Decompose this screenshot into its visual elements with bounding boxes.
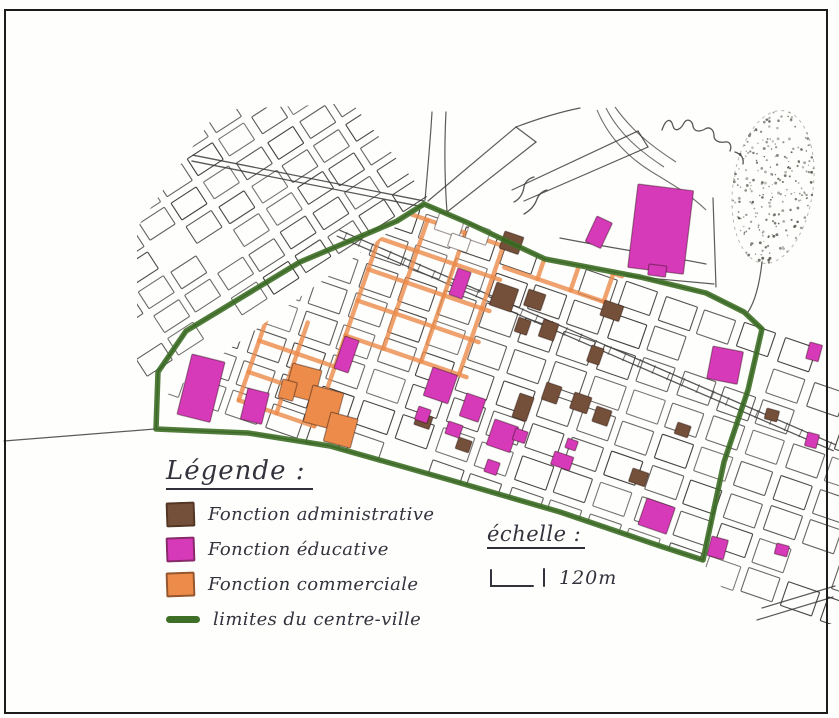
legend-item-commerciale: Fonction commerciale bbox=[166, 572, 434, 597]
legend-item-label: limites du centre-ville bbox=[213, 609, 421, 630]
legend-item-label: Fonction commerciale bbox=[208, 574, 418, 595]
legend-title: Légende : bbox=[166, 456, 313, 490]
map-legend: Légende : Fonction administrativeFonctio… bbox=[166, 456, 434, 642]
legend-swatch-administrative bbox=[166, 502, 196, 528]
scale-bar-icon bbox=[487, 565, 553, 591]
legend-item-administrative: Fonction administrative bbox=[166, 502, 434, 527]
scanned-map-page: Légende : Fonction administrativeFonctio… bbox=[0, 0, 839, 718]
scale-title: échelle : bbox=[487, 522, 585, 549]
legend-swatch-educative bbox=[166, 537, 196, 563]
scale-bar-row: 120m bbox=[487, 565, 617, 591]
scale-distance-label: 120m bbox=[559, 567, 617, 589]
legend-item-label: Fonction éducative bbox=[208, 539, 389, 560]
legend-swatch-limites bbox=[166, 616, 200, 623]
legend-item-limites: limites du centre-ville bbox=[166, 607, 434, 632]
legend-items: Fonction administrativeFonction éducativ… bbox=[166, 502, 434, 632]
map-scale: échelle : 120m bbox=[487, 522, 617, 591]
legend-item-educative: Fonction éducative bbox=[166, 537, 434, 562]
legend-item-label: Fonction administrative bbox=[208, 504, 434, 525]
legend-swatch-commerciale bbox=[166, 572, 196, 598]
